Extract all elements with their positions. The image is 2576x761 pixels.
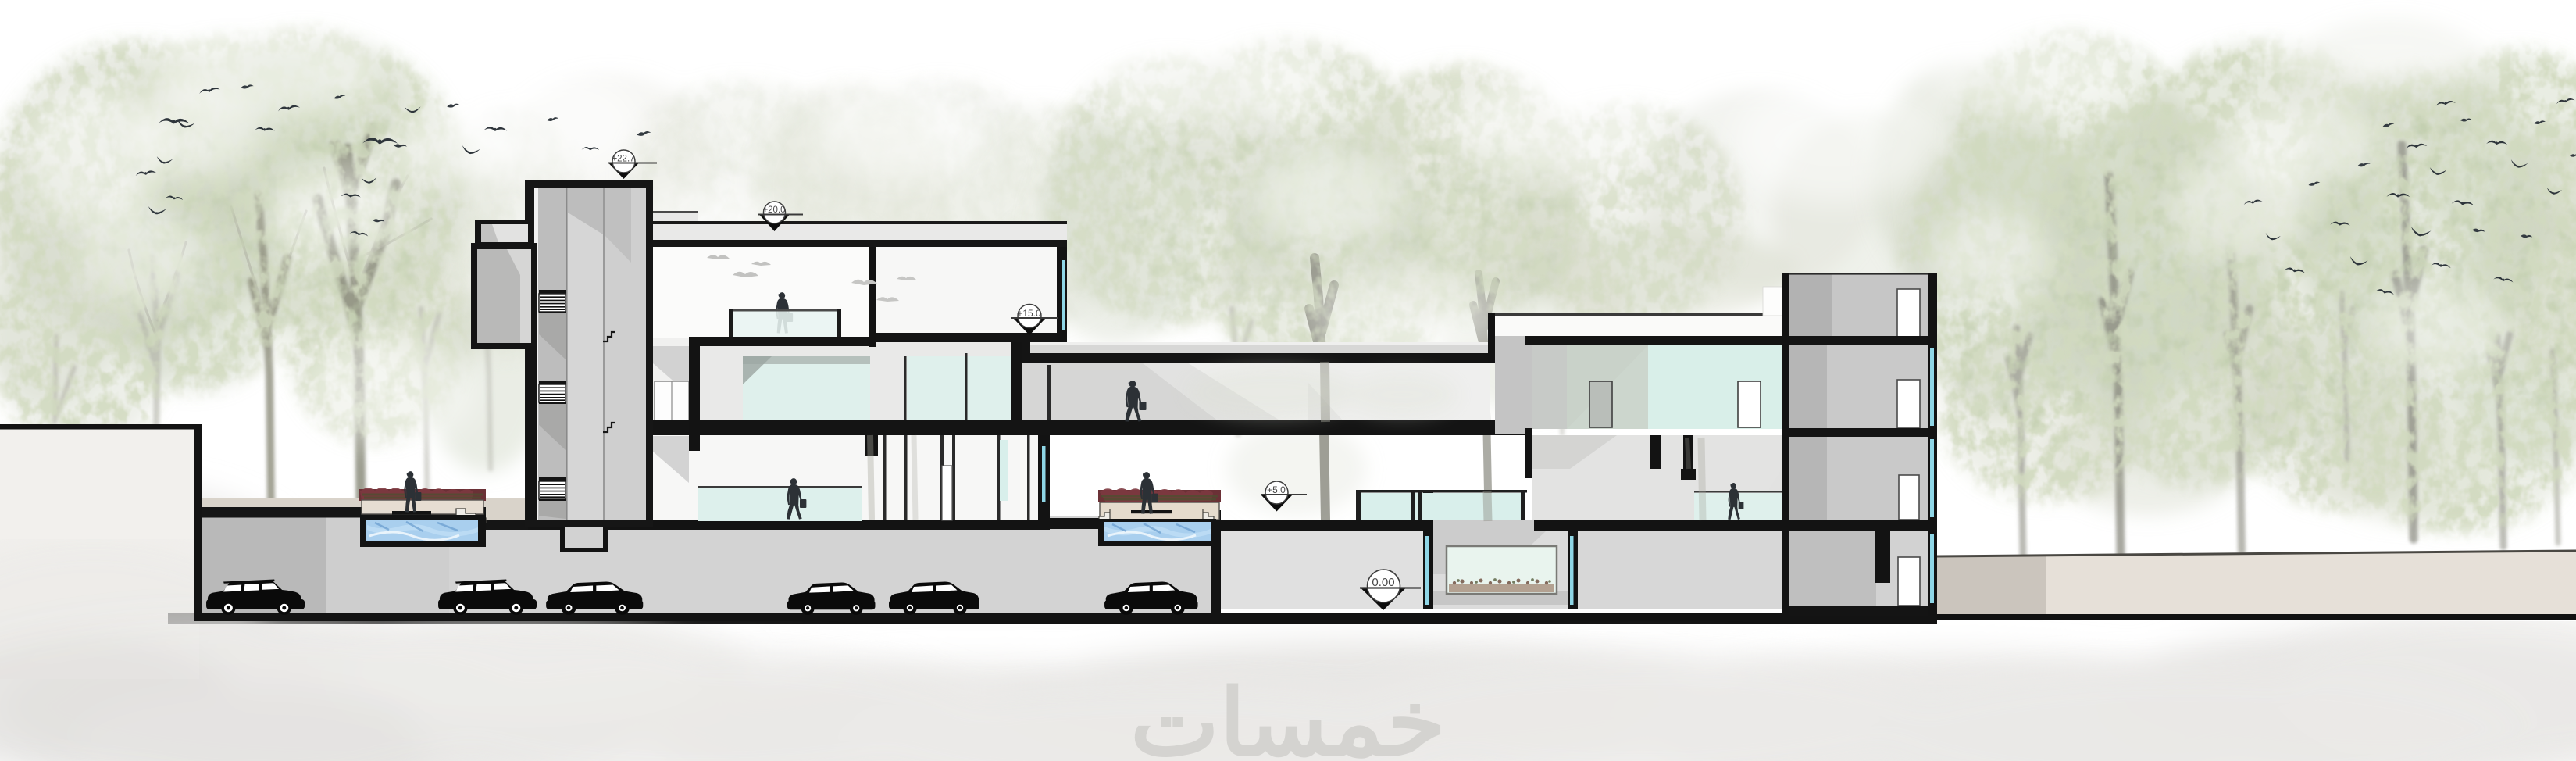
svg-text:+20.0: +20.0 <box>762 205 785 215</box>
svg-text:+15.0: +15.0 <box>1017 308 1041 319</box>
svg-text:+5.0: +5.0 <box>1267 484 1286 495</box>
svg-text:+22.7: +22.7 <box>612 155 634 164</box>
svg-text:0.00: 0.00 <box>1372 576 1394 589</box>
svg-text:خمسات: خمسات <box>1130 672 1446 761</box>
